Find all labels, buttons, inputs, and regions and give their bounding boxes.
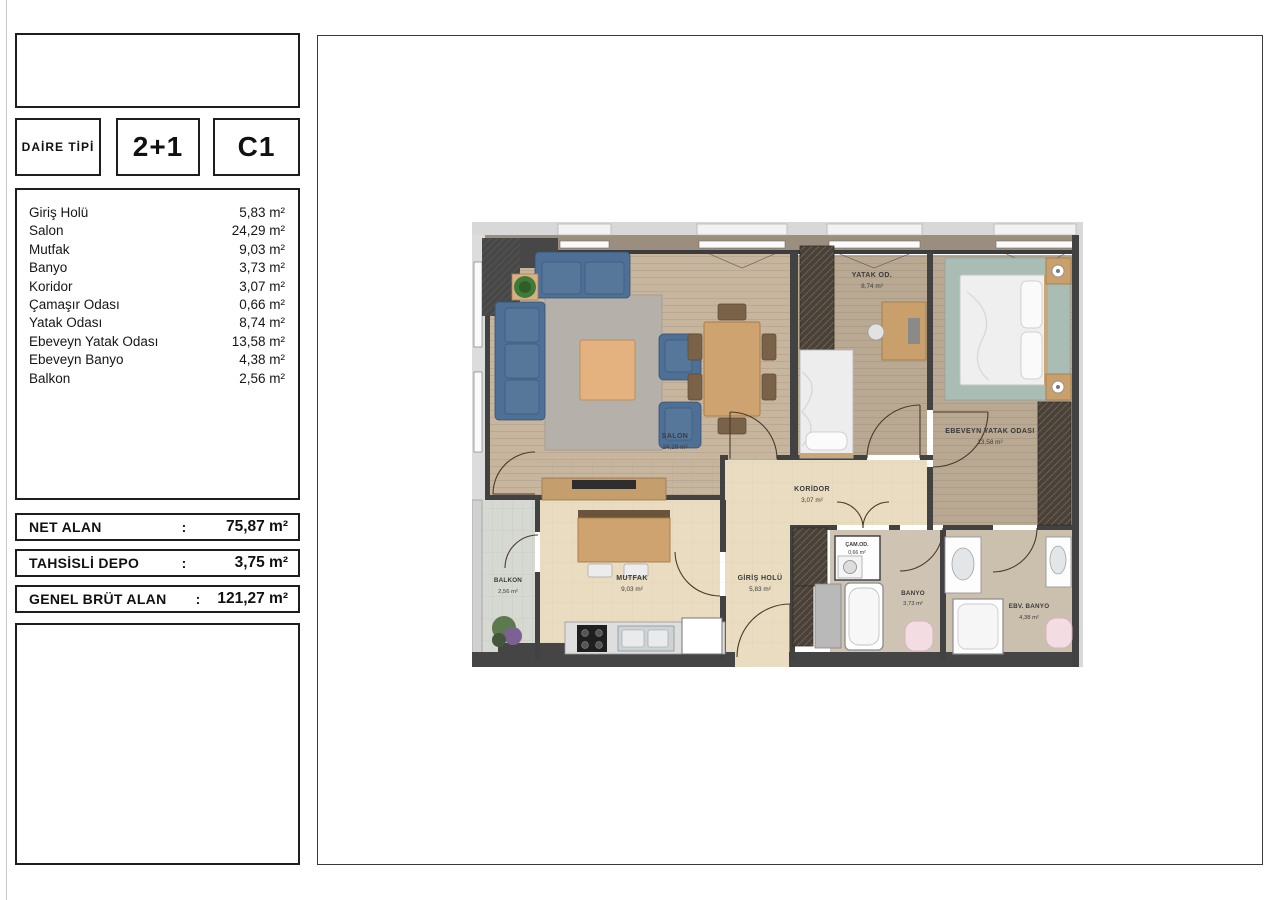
net-alan-value: 75,87 m² bbox=[226, 518, 288, 536]
room-list-row: Giriş Holü5,83 m² bbox=[29, 204, 285, 222]
net-alan-label: NET ALAN bbox=[29, 519, 177, 535]
toilet bbox=[905, 621, 933, 651]
plan-type-value: 2+1 bbox=[133, 131, 184, 163]
banyo-area: 3,73 m² bbox=[903, 601, 923, 607]
wall-koridor-bath-2 bbox=[889, 525, 900, 530]
room-area: 3,07 m² bbox=[239, 278, 285, 296]
dining-chair bbox=[688, 374, 702, 400]
mutfak-area: 9,03 m² bbox=[621, 586, 643, 593]
ebv-sink-basin bbox=[1050, 546, 1066, 574]
unit-code-value: C1 bbox=[238, 131, 276, 163]
giris-holu-area: 5,83 m² bbox=[749, 586, 771, 593]
daire-tipi-label: DAİRE TİPİ bbox=[22, 140, 95, 154]
bed-headboard bbox=[800, 453, 853, 458]
master-wardrobe-hatch bbox=[1038, 402, 1071, 525]
master-pillow bbox=[1021, 281, 1042, 328]
ebeveyn-area: 13,58 m² bbox=[977, 439, 1002, 446]
room-name: Giriş Holü bbox=[29, 204, 88, 222]
floor-plan: SALON 24,29 m² YATAK OD. 8,74 m² EBEVEYN… bbox=[472, 222, 1083, 667]
room-area: 3,73 m² bbox=[239, 259, 285, 277]
balcony-railing bbox=[472, 500, 482, 660]
banyo-label: BANYO bbox=[901, 590, 925, 597]
dining-chair bbox=[718, 304, 746, 320]
ebv-toilet bbox=[1046, 618, 1072, 648]
koridor-label: KORİDOR bbox=[794, 485, 830, 493]
tahsisli-depo-value: 3,75 m² bbox=[235, 554, 288, 572]
yatak-odasi-label: YATAK OD. bbox=[852, 272, 892, 279]
tv bbox=[572, 480, 636, 489]
room-name: Çamaşır Odası bbox=[29, 296, 120, 314]
page-edge-line bbox=[6, 0, 7, 900]
wall-koridor-bath-3 bbox=[943, 525, 993, 530]
sink-drainer bbox=[648, 630, 668, 647]
balcony-plant-dark bbox=[492, 633, 506, 647]
yatak-odasi-area: 8,74 m² bbox=[861, 283, 883, 290]
room-name: Yatak Odası bbox=[29, 314, 102, 332]
window-glazing bbox=[699, 241, 785, 248]
wall-yatak-koridor-stub bbox=[920, 455, 933, 460]
master-pillow bbox=[1021, 332, 1042, 379]
bottom-wall-block bbox=[498, 643, 565, 653]
ebv-banyo-area: 4,38 m² bbox=[1019, 615, 1039, 621]
bed-pillow bbox=[806, 432, 847, 450]
room-list-row: Ebeveyn Yatak Odası13,58 m² bbox=[29, 333, 285, 351]
right-exterior-band bbox=[1079, 235, 1083, 667]
balkon-label: BALKON bbox=[494, 577, 522, 584]
room-name: Ebeveyn Yatak Odası bbox=[29, 333, 158, 351]
room-name: Mutfak bbox=[29, 241, 70, 259]
room-list-row: Balkon2,56 m² bbox=[29, 370, 285, 388]
wall-salon-koridor-v bbox=[720, 455, 725, 500]
tahsisli-depo-label: TAHSİSLİ DEPO bbox=[29, 555, 177, 571]
dining-chair bbox=[718, 418, 746, 434]
giris-holu-label: GİRİŞ HOLÜ bbox=[738, 573, 783, 582]
shower-inner bbox=[958, 604, 998, 649]
sofa-top-cushion bbox=[585, 262, 624, 294]
genel-brut-alan-colon: : bbox=[191, 591, 205, 607]
wall-salon-koridor-r bbox=[777, 455, 790, 460]
camasir-odasi-area: 0,66 m² bbox=[848, 550, 866, 556]
mutfak-label: MUTFAK bbox=[616, 575, 648, 582]
room-name: Salon bbox=[29, 222, 64, 240]
master-headboard bbox=[1044, 275, 1048, 385]
room-name: Balkon bbox=[29, 370, 70, 388]
stove bbox=[577, 625, 607, 652]
genel-brut-alan-row: GENEL BRÜT ALAN : 121,27 m² bbox=[15, 585, 300, 613]
washing-machine-door bbox=[844, 561, 857, 574]
koridor-area: 3,07 m² bbox=[801, 497, 823, 504]
room-name: Koridor bbox=[29, 278, 73, 296]
ebeveyn-label: EBEVEYN YATAK ODASI bbox=[945, 428, 1034, 435]
room-name: Ebeveyn Banyo bbox=[29, 351, 124, 369]
wall-yatak-ebeveyn bbox=[927, 252, 933, 410]
notes-box-empty bbox=[15, 623, 300, 865]
kitchen-chair bbox=[588, 564, 612, 577]
room-area: 4,38 m² bbox=[239, 351, 285, 369]
window-glazing bbox=[829, 241, 920, 248]
plant-inner bbox=[519, 281, 531, 293]
logo-box-empty bbox=[15, 33, 300, 108]
lamp-center bbox=[1056, 385, 1060, 389]
sofa-top-cushion bbox=[542, 262, 581, 294]
net-alan-colon: : bbox=[177, 519, 191, 535]
genel-brut-alan-value: 121,27 m² bbox=[217, 590, 288, 608]
kitchen-table bbox=[578, 518, 670, 562]
tahsisli-depo-row: TAHSİSLİ DEPO : 3,75 m² bbox=[15, 549, 300, 577]
window-glazing bbox=[996, 241, 1074, 248]
wall-mutfak-giris-up bbox=[720, 500, 726, 552]
entrance-threshold bbox=[735, 652, 789, 667]
room-list-row: Çamaşır Odası0,66 m² bbox=[29, 296, 285, 314]
room-list-box: Giriş Holü5,83 m² Salon24,29 m² Mutfak9,… bbox=[15, 188, 300, 500]
room-area: 2,56 m² bbox=[239, 370, 285, 388]
window-glazing bbox=[560, 241, 609, 248]
shoe-cabinet bbox=[815, 584, 841, 648]
room-area: 24,29 m² bbox=[232, 222, 285, 240]
banyo-sink-basin bbox=[952, 548, 974, 580]
fridge bbox=[682, 618, 722, 654]
sofa-left-cushion bbox=[505, 380, 539, 414]
desk-chair bbox=[868, 324, 884, 340]
coffee-table bbox=[580, 340, 635, 400]
room-list-row: Koridor3,07 m² bbox=[29, 278, 285, 296]
tahsisli-depo-colon: : bbox=[177, 555, 191, 571]
window-glazing-left bbox=[474, 372, 482, 452]
wall-koridor-bath-4 bbox=[1037, 525, 1072, 530]
salon-label: SALON bbox=[662, 433, 689, 440]
wall-balkon-mutfak-up bbox=[535, 500, 540, 532]
lamp-center bbox=[1056, 269, 1060, 273]
room-list-row: Ebeveyn Banyo4,38 m² bbox=[29, 351, 285, 369]
window-sill bbox=[697, 224, 787, 235]
daire-tipi-box: DAİRE TİPİ bbox=[15, 118, 101, 176]
sink-basin bbox=[622, 630, 644, 647]
burner bbox=[582, 642, 589, 649]
room-area: 9,03 m² bbox=[239, 241, 285, 259]
wall-salon-yatak bbox=[790, 252, 798, 460]
room-area: 5,83 m² bbox=[239, 204, 285, 222]
room-list-row: Salon24,29 m² bbox=[29, 222, 285, 240]
sofa-left-cushion bbox=[505, 344, 539, 378]
net-alan-row: NET ALAN : 75,87 m² bbox=[15, 513, 300, 541]
ebv-banyo-label: EBV. BANYO bbox=[1009, 603, 1050, 610]
room-list-row: Mutfak9,03 m² bbox=[29, 241, 285, 259]
right-wall bbox=[1072, 235, 1079, 667]
balcony-plant-flower bbox=[504, 627, 522, 645]
wall-yatak-ebeveyn-low bbox=[927, 467, 933, 530]
dining-chair bbox=[688, 334, 702, 360]
room-area: 0,66 m² bbox=[239, 296, 285, 314]
desk-monitor bbox=[908, 318, 920, 344]
room-area: 13,58 m² bbox=[232, 333, 285, 351]
sofa-left-cushion bbox=[505, 308, 539, 342]
room-name: Banyo bbox=[29, 259, 67, 277]
window-sill bbox=[558, 224, 611, 235]
camasir-odasi-label: ÇAM.OD. bbox=[845, 542, 869, 548]
dining-chair bbox=[762, 334, 776, 360]
bathtub-inner bbox=[849, 588, 879, 645]
burner bbox=[596, 642, 603, 649]
burner bbox=[596, 630, 603, 637]
salon-area: 24,29 m² bbox=[662, 444, 687, 451]
room-area: 8,74 m² bbox=[239, 314, 285, 332]
burner bbox=[582, 630, 589, 637]
plan-type-box: 2+1 bbox=[116, 118, 200, 176]
dining-table bbox=[704, 322, 760, 416]
entry-wardrobe-hatch bbox=[793, 528, 827, 586]
wall-balkon-mutfak-low bbox=[535, 572, 540, 660]
room-list-row: Banyo3,73 m² bbox=[29, 259, 285, 277]
genel-brut-alan-label: GENEL BRÜT ALAN bbox=[29, 591, 191, 607]
window-sill bbox=[994, 224, 1076, 235]
window-sill bbox=[827, 224, 922, 235]
window-glazing-left bbox=[474, 262, 482, 347]
unit-code-box: C1 bbox=[213, 118, 300, 176]
balkon-area: 2,56 m² bbox=[498, 589, 518, 595]
entry-wardrobe-low-hatch bbox=[793, 586, 813, 646]
plan-frame: SALON 24,29 m² YATAK OD. 8,74 m² EBEVEYN… bbox=[317, 35, 1263, 865]
room-list-row: Yatak Odası8,74 m² bbox=[29, 314, 285, 332]
dining-chair bbox=[762, 374, 776, 400]
